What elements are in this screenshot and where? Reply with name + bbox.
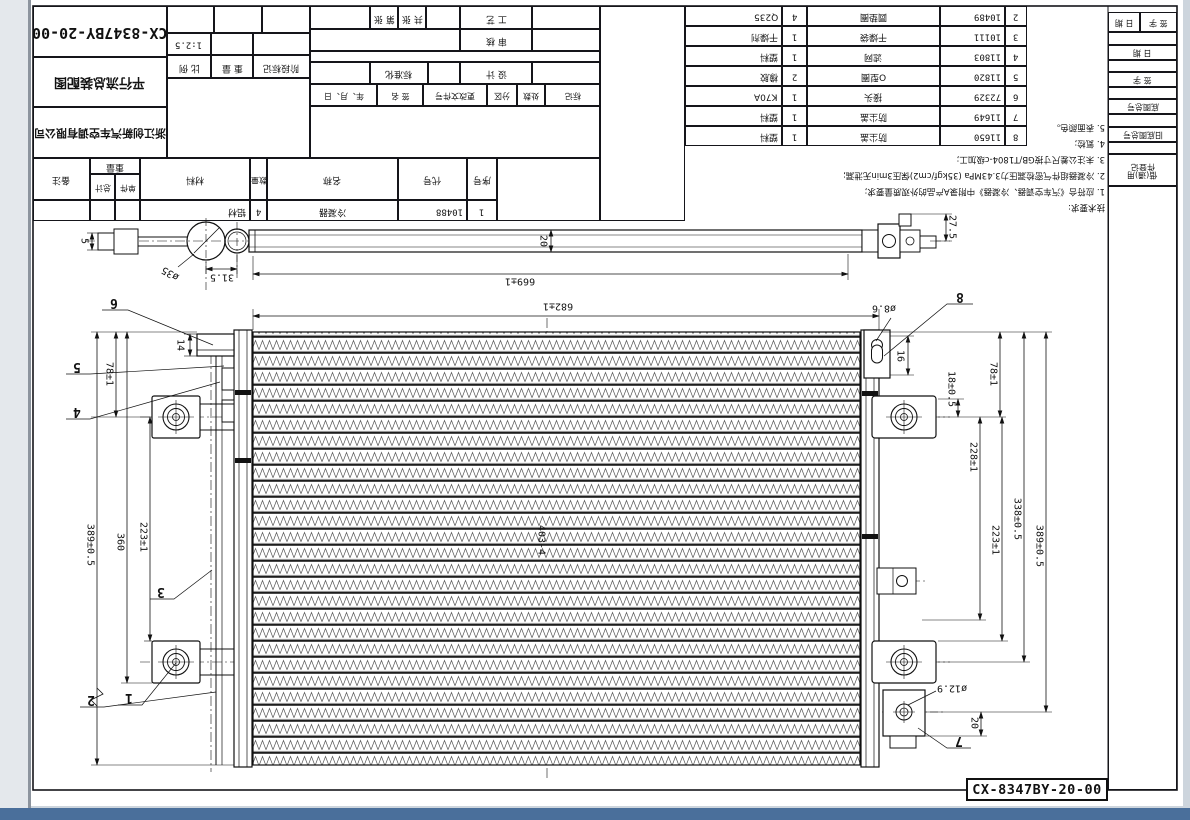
dim-682: 682±1	[543, 301, 573, 312]
bom-row-code: 10489	[940, 6, 1005, 26]
title-block-drawing-number: CX-8347BY-20-00	[33, 6, 167, 57]
title-block-empty-cell	[532, 62, 600, 84]
bom-row-qty: 1	[782, 26, 807, 46]
margin-empty	[1108, 142, 1177, 154]
bom-row-code: 11820	[940, 66, 1005, 86]
bom-row-material: Q235	[685, 6, 782, 26]
bom-row-qty: 4	[782, 6, 807, 26]
dim-223-left: 223±1	[138, 522, 149, 552]
bom-row-name: 圆垫圈	[807, 6, 940, 26]
title-block-empty-cell	[532, 6, 600, 29]
dim-669: 669±1	[505, 276, 535, 287]
bom-row-code: 10111	[940, 26, 1005, 46]
note-5: 5. 表面颜色。	[633, 119, 1105, 135]
title-block-count-label: 处数	[517, 84, 545, 106]
cad-viewer-canvas: { "sheet": { "drawing_number": "CX-8347B…	[0, 0, 1190, 820]
margin-empty	[1108, 32, 1177, 45]
margin-sign-label: 签 字	[1108, 72, 1177, 87]
technical-notes: 技术要求: 1. 应符合《汽车空调器、冷凝器》中附录A产品的外观质量要求; 2.…	[633, 103, 1105, 215]
bom-row-qty: 2	[782, 66, 807, 86]
balloon-7: 7	[955, 733, 963, 748]
dim-389-right: 389±0.5	[1034, 525, 1045, 567]
bom-header-material: 材料	[140, 158, 250, 200]
bom-row-name: 滤网	[807, 46, 940, 66]
bom-header-each: 单件	[115, 174, 140, 200]
bom-row1-material: 铝材	[140, 200, 250, 221]
title-block-mark-label: 标记	[545, 84, 600, 106]
bom-row-code: 11803	[940, 46, 1005, 66]
note-3: 3. 未注公差尺寸按GB/T1804-c级加工;	[633, 151, 1105, 167]
title-block-empty-cell	[310, 29, 460, 51]
margin-sign-cell: 签 字	[1140, 12, 1177, 32]
bom-row1-each	[115, 200, 140, 221]
title-block-weight-value	[211, 33, 253, 55]
title-block-empty-cell	[426, 6, 460, 29]
dim-27-5: 27.5	[947, 215, 958, 239]
margin-empty	[1108, 60, 1177, 72]
margin-old-master-no-label: 旧底图总号	[1108, 127, 1177, 142]
title-block-empty-cell	[310, 62, 370, 84]
dim-18: 18±0.5	[946, 371, 957, 407]
balloon-2: 2	[87, 692, 95, 707]
title-block-process-label: 工 艺	[460, 6, 532, 29]
title-block-check-label: 审 核	[460, 29, 532, 51]
balloon-1: 1	[125, 690, 133, 705]
title-block-sheets-label: 共 张	[398, 6, 426, 29]
bom-header-name: 名称	[267, 158, 398, 200]
title-block-empty-cell	[262, 6, 310, 33]
title-block-empty-cell	[310, 6, 370, 29]
title-block-empty-cell	[167, 6, 214, 33]
bom-row-name: 干燥袋	[807, 26, 940, 46]
dim-78-left: 78±1	[104, 362, 115, 386]
dim-338: 338±0.5	[1012, 498, 1023, 540]
note-1: 1. 应符合《汽车空调器、冷凝器》中附录A产品的外观质量要求;	[633, 183, 1105, 199]
bom-header-code: 代号	[398, 158, 467, 200]
bom-row-seq: 3	[1005, 26, 1027, 46]
margin-empty	[1108, 87, 1177, 99]
balloon-6: 6	[110, 295, 118, 310]
margin-borrow-register-label: 件登记 借(通)用	[1108, 154, 1177, 186]
bom-header-remark: 备注	[33, 158, 90, 200]
balloon-5: 5	[73, 359, 81, 374]
dim-360: 360	[115, 533, 126, 551]
balloon-3: 3	[157, 584, 165, 599]
note-4: 4. 氦检;	[633, 135, 1105, 151]
dim-228: 228±1	[968, 442, 979, 472]
title-block-empty-row	[310, 51, 600, 62]
dim-14: 14	[175, 339, 186, 351]
title-block-standard-label: 标准化	[370, 62, 428, 84]
bom-header-total: 总计	[90, 174, 115, 200]
dim-20-top: 20	[538, 235, 549, 247]
title-block-empty-cell	[428, 62, 460, 84]
margin-date-label: 日 期	[1108, 45, 1177, 60]
dim-403: 403-4	[536, 525, 547, 555]
bom-row-seq: 5	[1005, 66, 1027, 86]
bottom-scrollbar[interactable]	[0, 808, 1190, 820]
dim-78-right: 78±1	[988, 362, 999, 386]
title-block-scale-value: 1:2.5	[167, 33, 211, 55]
title-block-zone-label: 分区	[487, 84, 517, 106]
bom-row-seq: 2	[1005, 6, 1027, 26]
bom-row-name: O型圈	[807, 66, 940, 86]
dim-5: 5	[79, 238, 90, 244]
dim-dia12-9: ø12.9	[937, 683, 967, 694]
bom-row1-remark	[33, 200, 90, 221]
bom-row1-seq: 1	[467, 200, 497, 221]
dim-20-bottom: 20	[969, 717, 980, 729]
title-block-stage-label: 阶段标记	[253, 55, 310, 78]
dim-223-right: 223±1	[990, 525, 1001, 555]
notes-title: 技术要求:	[633, 199, 1105, 215]
dim-389-left: 389±0.5	[85, 524, 96, 566]
bom-row-material: 干燥剂	[685, 26, 782, 46]
title-block-sheet-no-label: 第 张	[370, 6, 398, 29]
dim-dia8-6: ø8.6	[872, 303, 896, 314]
title-block-empty-area	[167, 78, 310, 158]
dim-31-5: 31.5	[210, 272, 234, 283]
bom-header-seq: 序号	[467, 158, 497, 200]
title-block-date-label: 年、月、日	[310, 84, 377, 106]
title-block-weight-label: 重 量	[211, 55, 253, 78]
note-2: 2. 冷凝器组件气密检漏压力3.43MPa (35kgf/cm2)保压3min无…	[633, 167, 1105, 183]
dim-16: 16	[895, 350, 906, 362]
margin-date-cell: 日 期	[1108, 12, 1140, 32]
bom-row-material: 橡胶	[685, 66, 782, 86]
bom-header-qty: 数量	[250, 158, 267, 200]
title-block-sign-label: 签 名	[377, 84, 423, 106]
title-block-changefile-label: 更改文件号	[423, 84, 487, 106]
title-block-design-label: 设 计	[460, 62, 532, 84]
title-block-empty-cell	[532, 29, 600, 51]
bom-row1-total	[90, 200, 115, 221]
balloon-4: 4	[73, 404, 81, 419]
margin-empty	[1108, 114, 1177, 127]
part-number-label: CX-8347BY-20-00	[966, 778, 1108, 801]
title-block-stage-value	[253, 33, 310, 55]
bom-row-seq: 4	[1005, 46, 1027, 66]
margin-master-no-label: 底图总号	[1108, 99, 1177, 114]
bom-row-material: 塑料	[685, 46, 782, 66]
bom-row1-name: 冷凝器	[267, 200, 398, 221]
balloon-8: 8	[956, 289, 964, 304]
title-block-empty-cell	[214, 6, 262, 33]
title-block-empty-area	[310, 106, 600, 158]
bom-row1-qty: 4	[250, 200, 267, 221]
bom-header-weight: 重量	[90, 158, 140, 174]
margin-empty-tall	[1108, 186, 1177, 790]
bom-row1-code: 10488	[398, 200, 467, 221]
bom-row-qty: 1	[782, 46, 807, 66]
title-block-view-title: 平行流总装配图	[33, 57, 167, 107]
title-block-company: 浙江创新汽车空调有限公司	[33, 107, 167, 158]
title-block-scale-label: 比 例	[167, 55, 211, 78]
title-block-empty-area	[497, 158, 600, 221]
